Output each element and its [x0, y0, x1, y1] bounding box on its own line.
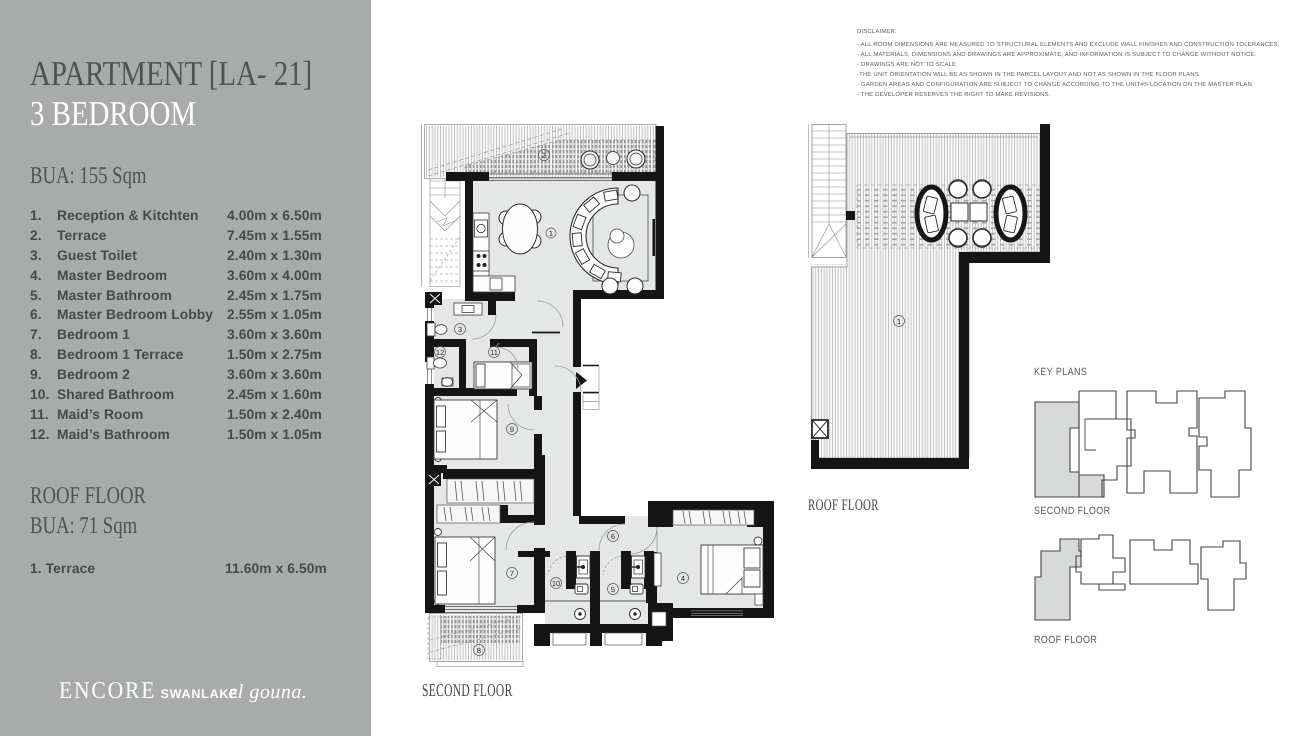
svg-text:10: 10 — [552, 579, 560, 588]
svg-text:11: 11 — [490, 348, 498, 357]
svg-text:12: 12 — [436, 348, 444, 357]
svg-text:9: 9 — [510, 425, 514, 434]
svg-text:2: 2 — [542, 151, 546, 160]
svg-text:1: 1 — [549, 229, 553, 238]
svg-text:1: 1 — [897, 317, 901, 326]
svg-text:6: 6 — [611, 532, 615, 541]
svg-text:8: 8 — [477, 646, 481, 655]
svg-text:4: 4 — [681, 574, 685, 583]
svg-text:5: 5 — [611, 585, 615, 594]
svg-text:7: 7 — [510, 569, 514, 578]
svg-text:3: 3 — [458, 325, 462, 334]
